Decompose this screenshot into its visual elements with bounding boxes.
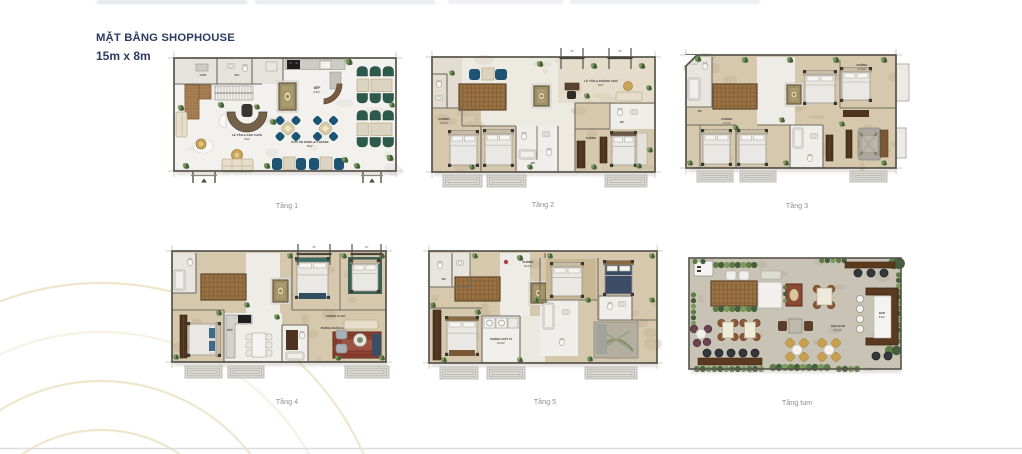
svg-text:Tầng 3: Tầng 3 <box>786 201 808 210</box>
svg-text:PHÒNG: PHÒNG <box>721 116 733 121</box>
svg-text:Tầng 1: Tầng 1 <box>276 201 298 210</box>
svg-text:KHO: KHO <box>200 73 207 77</box>
svg-text:31m²: 31m² <box>244 137 250 141</box>
svg-text:Tầng 5: Tầng 5 <box>534 397 556 406</box>
svg-text:WC: WC <box>442 277 447 281</box>
svg-text:16m²: 16m² <box>598 83 604 87</box>
svg-text:PHÒNG GIẶT ỦI: PHÒNG GIẶT ỦI <box>490 336 512 341</box>
svg-text:BẾP: BẾP <box>227 327 233 332</box>
svg-text:WC: WC <box>698 109 703 113</box>
svg-text:KHU ĂN SÁNG & COFFEE: KHU ĂN SÁNG & COFFEE <box>291 139 328 144</box>
svg-text:Tầng 2: Tầng 2 <box>532 200 554 209</box>
svg-text:81.3m²: 81.3m² <box>834 328 842 332</box>
svg-text:WC: WC <box>235 73 241 77</box>
svg-text:15.3m²: 15.3m² <box>858 67 866 71</box>
svg-text:PHÒNG: PHÒNG <box>586 135 596 140</box>
svg-text:Tầng 4: Tầng 4 <box>276 397 298 406</box>
svg-text:LỄ TÂN & PHÒNG CHỜ: LỄ TÂN & PHÒNG CHỜ <box>584 78 618 83</box>
svg-text:PHÒNG: PHÒNG <box>438 116 450 121</box>
svg-text:PHÒNG: PHÒNG <box>856 62 868 67</box>
svg-text:10.6m²: 10.6m² <box>497 341 505 345</box>
svg-text:BẾP: BẾP <box>314 85 321 90</box>
svg-text:WC: WC <box>620 120 624 124</box>
svg-text:15m x 8m: 15m x 8m <box>96 49 151 63</box>
svg-text:KHU BAR: KHU BAR <box>831 324 846 328</box>
svg-text:6.0m²: 6.0m² <box>314 90 321 94</box>
svg-text:16.2m²: 16.2m² <box>524 264 532 268</box>
svg-text:11.5m²: 11.5m² <box>723 121 731 125</box>
svg-text:86m²: 86m² <box>307 144 313 148</box>
svg-text:MẶT BẰNG SHOPHOUSE: MẶT BẰNG SHOPHOUSE <box>96 31 235 44</box>
svg-text:8.0m²: 8.0m² <box>879 315 885 319</box>
svg-text:Tầng tum: Tầng tum <box>782 398 812 407</box>
svg-text:14.8m²: 14.8m² <box>440 121 448 125</box>
svg-text:LỄ TÂN & KHU CAFE: LỄ TÂN & KHU CAFE <box>232 132 262 137</box>
svg-text:PHÒNG 15.3m²: PHÒNG 15.3m² <box>326 313 346 318</box>
svg-text:WC: WC <box>531 161 536 165</box>
svg-text:PHÒNG: PHÒNG <box>522 259 534 264</box>
svg-text:BAR: BAR <box>879 311 885 315</box>
